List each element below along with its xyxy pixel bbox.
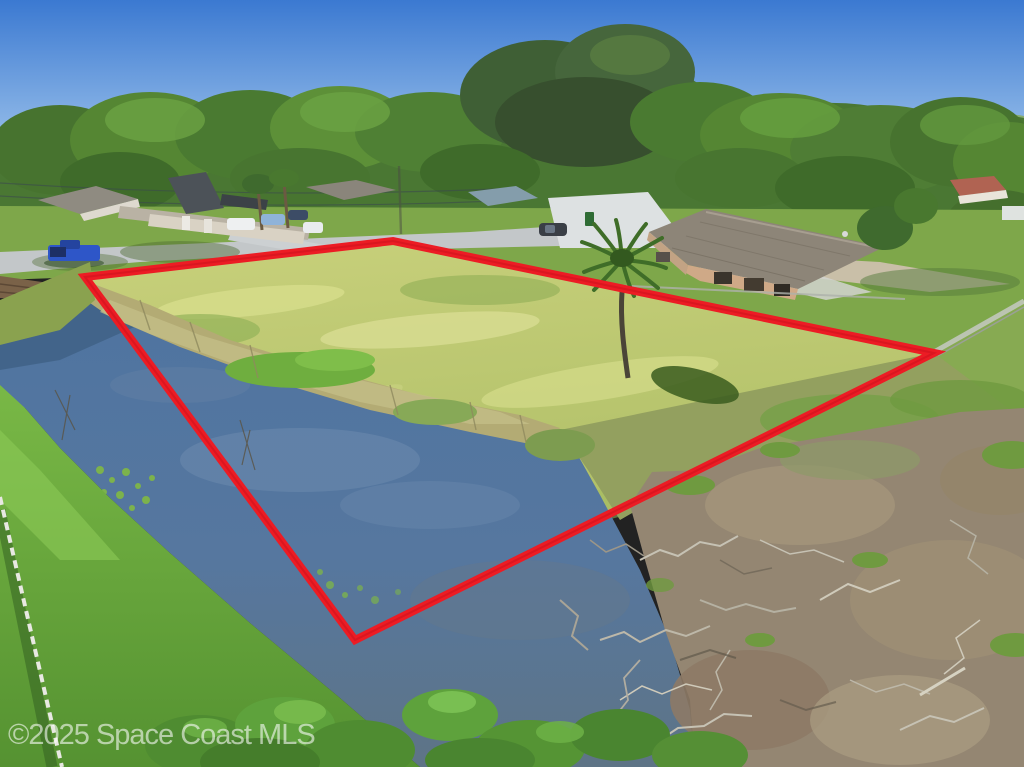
- white-shed: [1002, 206, 1024, 220]
- aerial-photo: ©2025 Space Coast MLS: [0, 0, 1024, 767]
- yard-tree-2: [894, 188, 938, 224]
- porch-column: [182, 216, 190, 230]
- dark-suv: [288, 210, 308, 220]
- street-car-windshield: [545, 225, 555, 233]
- white-car-1: [227, 218, 255, 230]
- reed-green-patch: [393, 399, 477, 425]
- house-window: [656, 252, 670, 262]
- blue-car: [261, 214, 285, 225]
- yard-tree-shadow: [860, 268, 1020, 296]
- palm-crown-left-2: [269, 169, 299, 187]
- white-car-2: [303, 222, 323, 233]
- carport-opening: [714, 272, 732, 284]
- porch-column-2: [204, 219, 212, 233]
- water-reflection-2: [340, 481, 520, 529]
- aquatic-plants-2: [295, 349, 375, 371]
- water-reflection: [180, 428, 420, 492]
- carport-opening-2: [744, 278, 764, 291]
- roof-vent: [842, 231, 848, 237]
- palm-crown: [610, 249, 634, 267]
- watermark: ©2025 Space Coast MLS: [8, 719, 315, 751]
- reed-green-patch-2: [525, 429, 595, 461]
- aerial-photo-frame: ©2025 Space Coast MLS: [0, 0, 1024, 767]
- pickup-bed: [50, 247, 66, 257]
